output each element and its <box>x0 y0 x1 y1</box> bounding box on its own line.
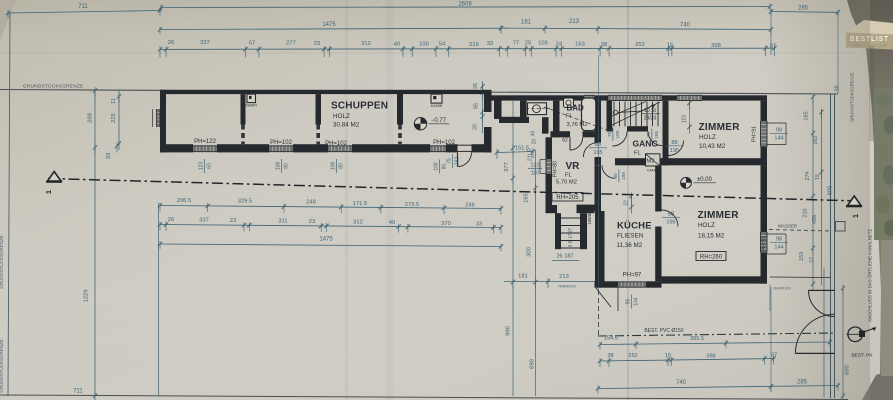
svg-text:195: 195 <box>670 148 679 154</box>
svg-text:11: 11 <box>111 98 117 104</box>
svg-text:165: 165 <box>804 111 810 120</box>
svg-text:33: 33 <box>106 153 112 159</box>
svg-text:144: 144 <box>774 136 783 142</box>
svg-text:PH=122: PH=122 <box>194 139 217 145</box>
svg-text:163: 163 <box>575 42 585 48</box>
svg-text:PH=91: PH=91 <box>762 235 768 251</box>
svg-text:40: 40 <box>389 220 395 226</box>
svg-text:KÜCHE: KÜCHE <box>617 220 652 231</box>
svg-text:5 St 17/27: 5 St 17/27 <box>568 227 573 247</box>
svg-text:24: 24 <box>556 41 563 47</box>
svg-text:20: 20 <box>532 139 538 145</box>
svg-text:690: 690 <box>845 365 851 375</box>
svg-text:144: 144 <box>774 245 783 251</box>
svg-text:171.5: 171.5 <box>353 201 368 207</box>
svg-text:54: 54 <box>439 42 446 48</box>
svg-text:GANG: GANG <box>633 138 659 148</box>
svg-text:PH=97: PH=97 <box>623 273 642 279</box>
svg-text:BEST. PK: BEST. PK <box>851 353 873 359</box>
svg-text:38: 38 <box>835 85 841 91</box>
svg-text:108: 108 <box>433 162 439 171</box>
svg-text:216: 216 <box>469 42 479 48</box>
svg-text:88: 88 <box>668 212 674 218</box>
svg-text:740: 740 <box>676 380 687 386</box>
svg-text:154.5: 154.5 <box>604 336 618 342</box>
svg-text:80: 80 <box>338 163 344 169</box>
svg-text:30,84 M2: 30,84 M2 <box>333 121 360 128</box>
svg-text:690: 690 <box>530 359 536 369</box>
svg-text:740: 740 <box>680 23 691 29</box>
svg-text:PH=102: PH=102 <box>270 140 293 146</box>
svg-text:VR: VR <box>566 161 581 172</box>
svg-text:PH=102: PH=102 <box>433 140 456 146</box>
svg-text:BAD: BAD <box>567 104 585 113</box>
svg-text:990: 990 <box>506 326 512 336</box>
svg-text:144: 144 <box>633 297 639 306</box>
svg-text:GRUNDSTÜCKSGRENZE: GRUNDSTÜCKSGRENZE <box>0 235 4 289</box>
svg-text:98: 98 <box>776 128 782 134</box>
svg-text:159: 159 <box>799 252 805 261</box>
svg-text:456: 456 <box>812 215 818 224</box>
svg-text:181: 181 <box>518 274 528 280</box>
svg-text:1: 1 <box>44 190 53 194</box>
svg-text:274: 274 <box>805 171 811 180</box>
svg-text:181: 181 <box>521 20 532 26</box>
svg-text:252: 252 <box>635 42 645 48</box>
svg-text:KAMIN: KAMIN <box>246 104 258 108</box>
svg-text:ZIMMER: ZIMMER <box>699 122 741 133</box>
svg-text:ZIMMER: ZIMMER <box>698 210 740 221</box>
svg-text:273.5: 273.5 <box>405 202 420 208</box>
svg-text:RH=205: RH=205 <box>556 195 579 201</box>
svg-text:75: 75 <box>607 132 613 138</box>
svg-text:2609: 2609 <box>458 1 472 7</box>
svg-text:165: 165 <box>524 193 530 203</box>
svg-text:385.5: 385.5 <box>690 336 704 342</box>
svg-text:RH=260: RH=260 <box>700 255 723 261</box>
svg-text:1229: 1229 <box>84 290 90 303</box>
svg-text:285: 285 <box>797 380 808 386</box>
svg-text:15: 15 <box>667 42 673 48</box>
svg-text:300: 300 <box>527 247 533 257</box>
svg-text:18,15 M2: 18,15 M2 <box>698 233 725 240</box>
svg-text:213: 213 <box>569 19 580 25</box>
svg-text:100: 100 <box>419 42 429 48</box>
svg-text:337: 337 <box>200 40 210 46</box>
svg-text:88: 88 <box>595 142 601 148</box>
svg-text:GRUNDSTÜCKSGRENZE: GRUNDSTÜCKSGRENZE <box>850 72 855 122</box>
svg-text:711: 711 <box>78 4 88 10</box>
svg-text:23: 23 <box>314 41 320 47</box>
svg-text:15: 15 <box>815 174 821 180</box>
svg-text:398: 398 <box>711 43 721 49</box>
svg-text:246: 246 <box>465 202 475 208</box>
svg-text:40: 40 <box>531 131 537 137</box>
svg-text:10,43 M2: 10,43 M2 <box>699 143 726 150</box>
svg-text:25: 25 <box>525 41 531 47</box>
svg-text:77: 77 <box>513 41 519 47</box>
svg-text:75: 75 <box>446 158 452 164</box>
svg-text:GRUNDSTÜCKSGRENZE: GRUNDSTÜCKSGRENZE <box>23 83 84 89</box>
svg-text:60: 60 <box>206 163 212 169</box>
svg-text:211.5: 211.5 <box>528 149 534 161</box>
svg-text:248: 248 <box>306 200 316 206</box>
svg-text:BEST. PVC Ø150: BEST. PVC Ø150 <box>644 328 683 334</box>
svg-text:210: 210 <box>803 208 809 217</box>
svg-text:PH=102: PH=102 <box>325 141 348 147</box>
svg-text:108: 108 <box>330 162 336 171</box>
svg-text:RAR#100: RAR#100 <box>558 284 576 289</box>
svg-text:85: 85 <box>474 103 480 109</box>
svg-text:110: 110 <box>531 171 540 177</box>
svg-text:FL: FL <box>634 151 642 157</box>
svg-text:206.5: 206.5 <box>177 198 192 204</box>
svg-text:1475: 1475 <box>322 22 336 28</box>
svg-text:289: 289 <box>88 113 94 123</box>
svg-text:GRUNDSTÜCKSGRENZE: GRUNDSTÜCKSGRENZE <box>0 339 4 393</box>
svg-text:95: 95 <box>625 299 631 305</box>
svg-text:PH=80: PH=80 <box>553 161 559 177</box>
svg-text:38: 38 <box>607 353 613 359</box>
svg-text:311: 311 <box>278 219 287 225</box>
svg-text:37: 37 <box>810 257 816 263</box>
svg-text:80: 80 <box>441 164 447 170</box>
svg-text:123: 123 <box>531 163 540 169</box>
svg-text:57: 57 <box>249 40 255 46</box>
svg-text:195: 195 <box>621 172 627 180</box>
svg-text:HOLZ: HOLZ <box>698 222 715 229</box>
svg-text:15: 15 <box>665 353 671 359</box>
svg-text:26: 26 <box>168 217 174 223</box>
svg-text:808: 808 <box>828 186 834 196</box>
svg-text:26: 26 <box>473 83 479 89</box>
svg-text:38: 38 <box>601 42 607 48</box>
svg-text:80: 80 <box>283 163 289 169</box>
svg-text:37: 37 <box>771 352 777 358</box>
svg-text:11,36 M2: 11,36 M2 <box>617 242 643 249</box>
svg-text:1475: 1475 <box>319 237 333 243</box>
svg-text:62: 62 <box>562 138 568 144</box>
svg-text:33: 33 <box>476 221 482 227</box>
svg-text:80: 80 <box>613 173 619 179</box>
svg-text:RAR#100: RAR#100 <box>773 286 791 291</box>
svg-text:22: 22 <box>624 200 630 206</box>
svg-text:FLIESEN: FLIESEN <box>617 232 644 239</box>
svg-text:3,76 M2: 3,76 M2 <box>567 122 588 128</box>
svg-text:225: 225 <box>111 113 117 123</box>
svg-text:329.5: 329.5 <box>238 199 253 205</box>
svg-text:105: 105 <box>538 41 548 47</box>
svg-text:195: 195 <box>615 130 621 138</box>
svg-text:FL: FL <box>565 173 573 179</box>
svg-text:−0.77: −0.77 <box>431 118 447 124</box>
svg-text:115: 115 <box>682 115 688 123</box>
svg-text:26 187: 26 187 <box>556 254 573 260</box>
svg-text:SCHUPPEN: SCHUPPEN <box>331 101 388 112</box>
svg-text:312: 312 <box>361 41 371 47</box>
svg-text:98: 98 <box>776 237 782 243</box>
svg-text:33: 33 <box>487 41 493 47</box>
svg-text:88: 88 <box>671 140 677 146</box>
svg-text:23: 23 <box>230 218 236 224</box>
svg-text:75: 75 <box>646 132 652 138</box>
svg-text:108/80: 108/80 <box>587 211 592 225</box>
svg-text:195: 195 <box>666 220 675 226</box>
svg-text:HOLZ: HOLZ <box>333 113 350 120</box>
svg-text:5,70 M2: 5,70 M2 <box>556 180 577 186</box>
svg-text:23/20: 23/20 <box>644 115 657 121</box>
svg-text:312: 312 <box>353 220 363 226</box>
svg-text:195: 195 <box>593 150 602 156</box>
svg-text:±0.00: ±0.00 <box>697 177 713 183</box>
svg-text:3,50 M2: 3,50 M2 <box>634 159 655 165</box>
svg-text:262: 262 <box>813 135 819 144</box>
svg-text:711: 711 <box>73 389 83 395</box>
svg-text:252: 252 <box>628 353 637 359</box>
svg-text:1: 1 <box>851 214 860 218</box>
svg-text:26: 26 <box>168 40 174 46</box>
svg-text:377: 377 <box>504 162 510 172</box>
svg-text:10 St: 10 St <box>644 108 656 114</box>
svg-text:108: 108 <box>275 162 281 171</box>
svg-text:123: 123 <box>198 162 204 171</box>
svg-text:370: 370 <box>441 221 451 227</box>
svg-text:40: 40 <box>394 41 400 47</box>
svg-text:337: 337 <box>199 217 209 223</box>
svg-text:KAMIN: KAMIN <box>431 104 443 108</box>
svg-text:WASSER: WASSER <box>778 224 798 229</box>
svg-text:213: 213 <box>559 274 569 280</box>
svg-text:398: 398 <box>706 354 715 360</box>
svg-text:277: 277 <box>286 41 296 47</box>
svg-text:ANSCHLUSS IN DAS ÖRTLICHE KANA: ANSCHLUSS IN DAS ÖRTLICHE KANALNETZ <box>868 229 873 322</box>
svg-text:20: 20 <box>473 124 479 130</box>
svg-text:23: 23 <box>309 219 315 225</box>
svg-text:HOLZ: HOLZ <box>699 134 716 141</box>
svg-text:285: 285 <box>798 6 809 12</box>
svg-text:182: 182 <box>454 157 460 166</box>
svg-text:PH=91: PH=91 <box>752 126 758 142</box>
